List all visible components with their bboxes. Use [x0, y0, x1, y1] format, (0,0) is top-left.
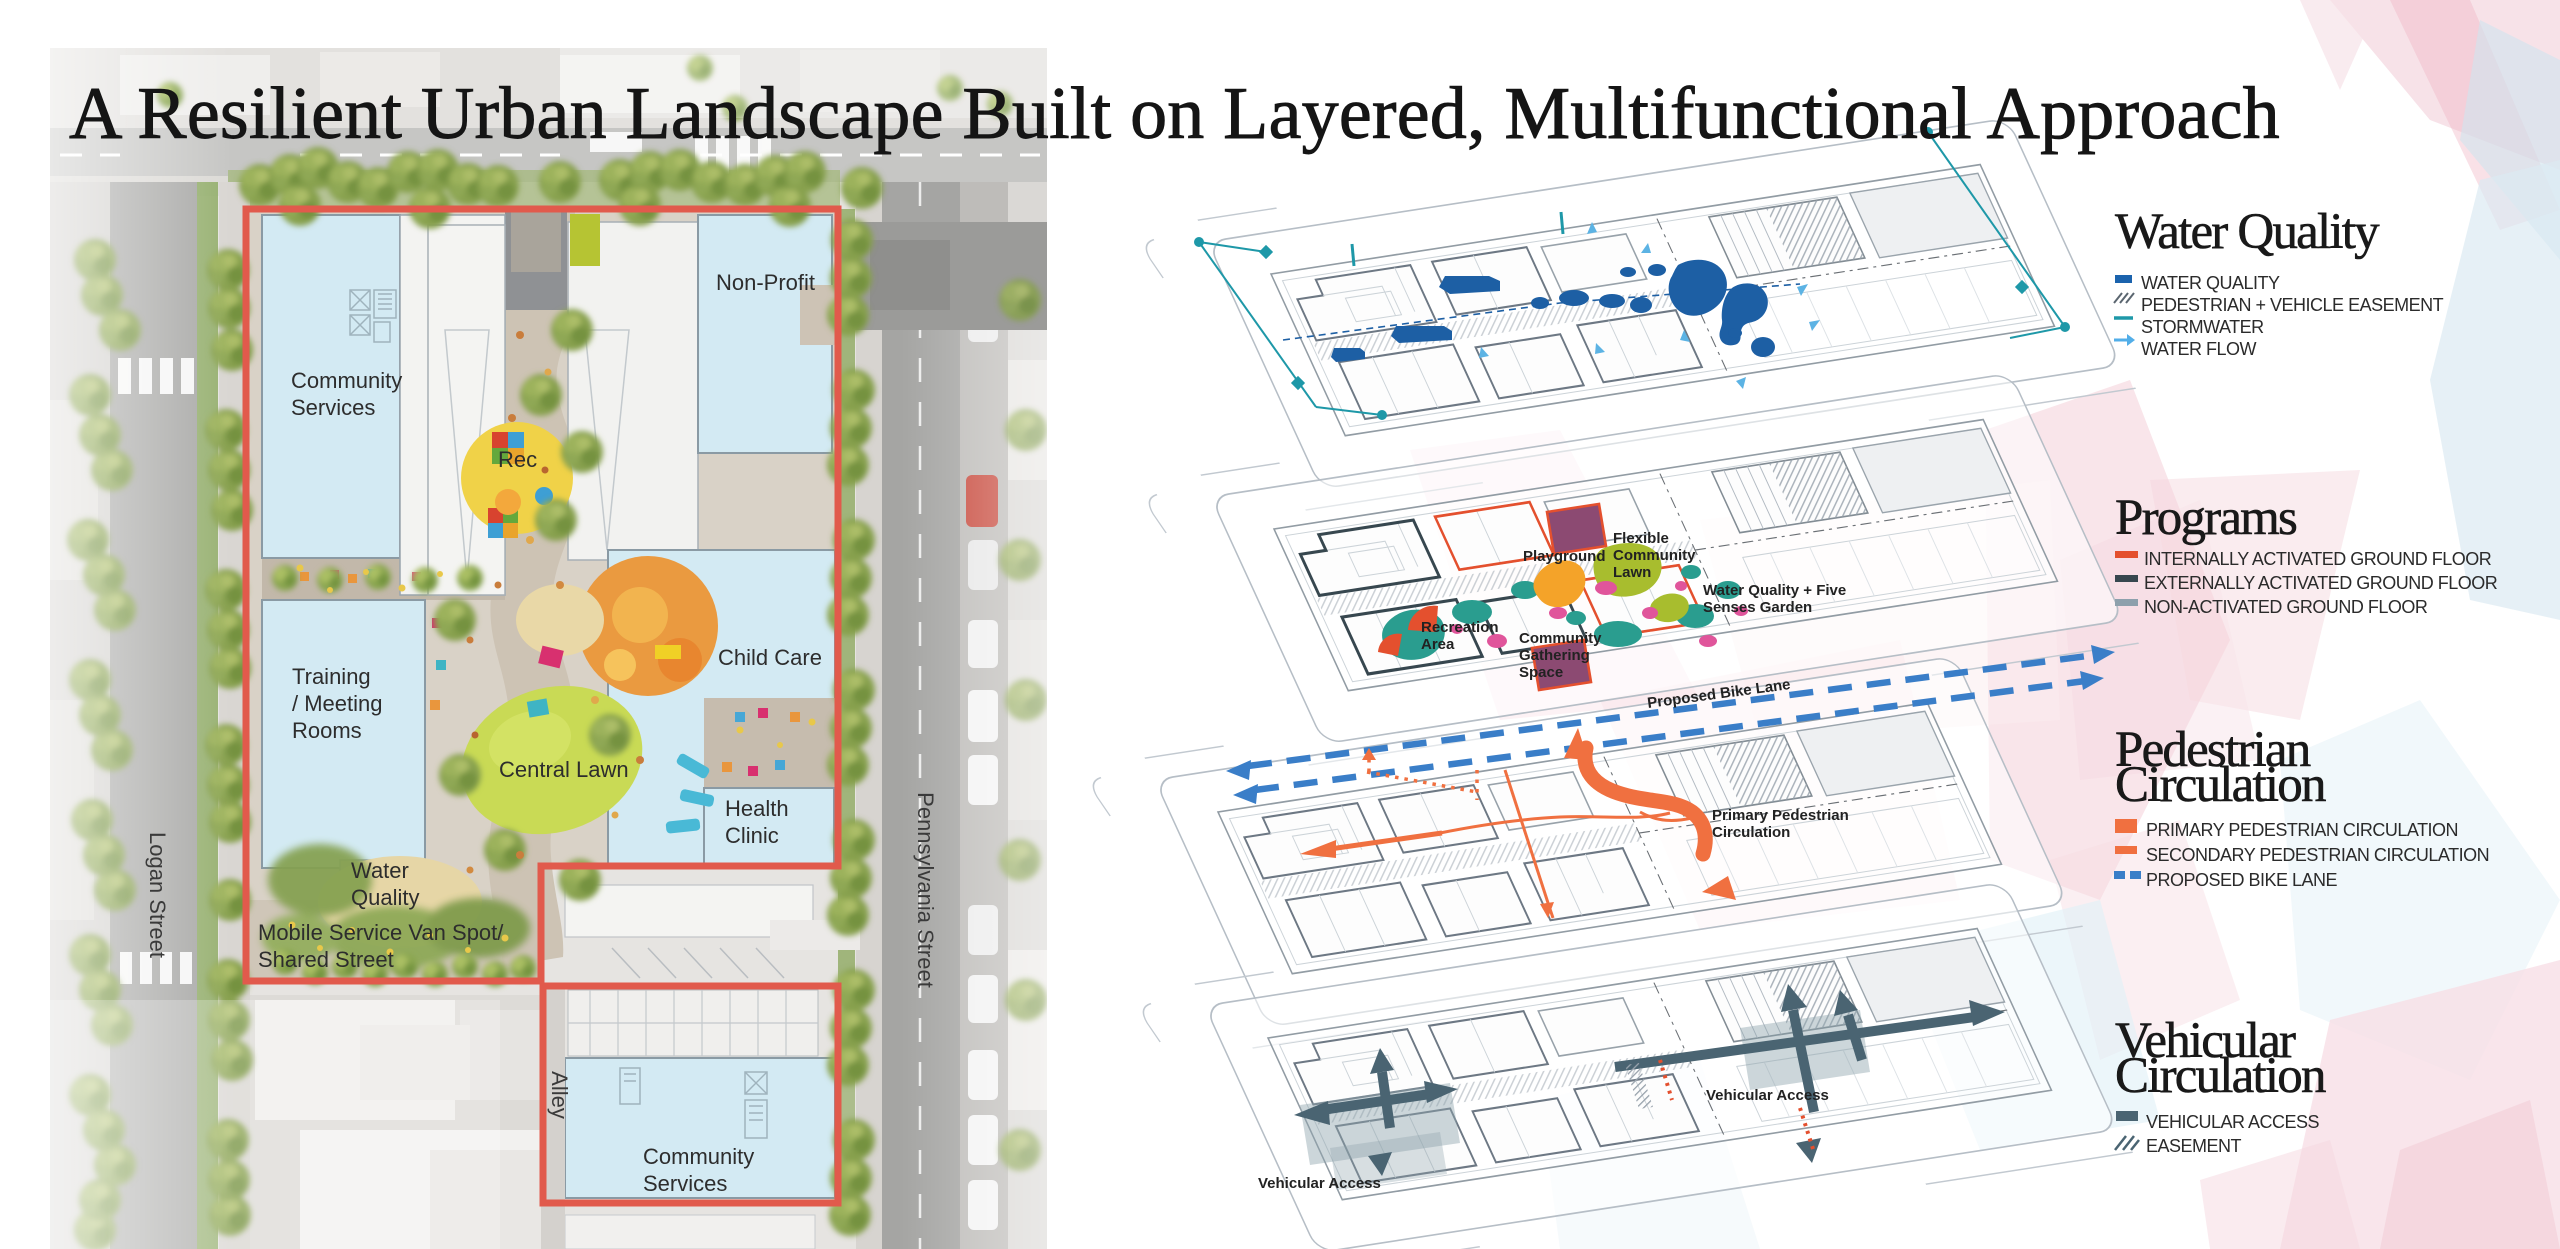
- svg-text:Rec: Rec: [498, 447, 537, 472]
- svg-text:Water Quality + Five: Water Quality + Five: [1703, 582, 1846, 599]
- svg-text:Rooms: Rooms: [292, 718, 362, 743]
- svg-text:Services: Services: [291, 395, 375, 420]
- svg-text:A Resilient Urban Landscape Bu: A Resilient Urban Landscape Built on Lay…: [69, 73, 2280, 155]
- svg-text:EXTERNALLY ACTIVATED GROUND FL: EXTERNALLY ACTIVATED GROUND FLOOR: [2144, 573, 2498, 593]
- svg-text:Health: Health: [725, 796, 789, 821]
- svg-text:Non-Profit: Non-Profit: [716, 270, 815, 295]
- svg-text:WATER FLOW: WATER FLOW: [2141, 339, 2256, 359]
- svg-text:STORMWATER: STORMWATER: [2141, 317, 2264, 337]
- svg-text:PEDESTRIAN + VEHICLE EASEMENT: PEDESTRIAN + VEHICLE EASEMENT: [2141, 295, 2444, 315]
- svg-text:Training: Training: [292, 664, 371, 689]
- svg-text:Circulation: Circulation: [2115, 757, 2326, 813]
- svg-text:EASEMENT: EASEMENT: [2146, 1136, 2242, 1156]
- svg-text:Alley: Alley: [547, 1071, 572, 1119]
- svg-text:Senses Garden: Senses Garden: [1703, 599, 1812, 616]
- svg-text:WATER QUALITY: WATER QUALITY: [2141, 273, 2280, 293]
- svg-text:Shared Street: Shared Street: [258, 947, 394, 972]
- svg-text:Circulation: Circulation: [2115, 1048, 2326, 1104]
- svg-text:NON-ACTIVATED GROUND FLOOR: NON-ACTIVATED GROUND FLOOR: [2144, 597, 2428, 617]
- svg-text:PROPOSED BIKE LANE: PROPOSED BIKE LANE: [2146, 870, 2338, 890]
- svg-text:Services: Services: [643, 1171, 727, 1196]
- svg-text:Water Quality: Water Quality: [2115, 204, 2380, 260]
- svg-text:Space: Space: [1519, 664, 1563, 681]
- svg-text:Vehicular Access: Vehicular Access: [1706, 1087, 1829, 1104]
- svg-text:Area: Area: [1421, 636, 1455, 653]
- svg-text:Circulation: Circulation: [1712, 824, 1790, 841]
- svg-text:Central Lawn: Central Lawn: [499, 757, 629, 782]
- svg-text:Community: Community: [291, 368, 402, 393]
- svg-text:Recreation: Recreation: [1421, 619, 1499, 636]
- svg-text:Water: Water: [351, 858, 409, 883]
- svg-text:Mobile Service Van Spot/: Mobile Service Van Spot/: [258, 920, 504, 945]
- svg-text:Logan Street: Logan Street: [145, 832, 170, 958]
- svg-text:Community: Community: [1613, 547, 1696, 564]
- svg-text:Quality: Quality: [351, 885, 419, 910]
- svg-text:INTERNALLY ACTIVATED GROUND FL: INTERNALLY ACTIVATED GROUND FLOOR: [2144, 549, 2492, 569]
- svg-text:PRIMARY PEDESTRIAN CIRCULATION: PRIMARY PEDESTRIAN CIRCULATION: [2146, 820, 2458, 840]
- svg-text:Lawn: Lawn: [1613, 564, 1651, 581]
- svg-text:Vehicular Access: Vehicular Access: [1258, 1175, 1381, 1192]
- svg-text:Clinic: Clinic: [725, 823, 779, 848]
- svg-text:Community: Community: [643, 1144, 754, 1169]
- svg-text:SECONDARY PEDESTRIAN CIRCULATI: SECONDARY PEDESTRIAN CIRCULATION: [2146, 845, 2489, 865]
- svg-text:VEHICULAR ACCESS: VEHICULAR ACCESS: [2146, 1112, 2320, 1132]
- svg-text:Flexible: Flexible: [1613, 530, 1669, 547]
- svg-text:Pennsylvania Street: Pennsylvania Street: [913, 792, 938, 988]
- svg-text:/ Meeting: / Meeting: [292, 691, 383, 716]
- svg-text:Playground: Playground: [1523, 548, 1606, 565]
- svg-text:Child Care: Child Care: [718, 645, 822, 670]
- svg-text:Primary Pedestrian: Primary Pedestrian: [1712, 807, 1849, 824]
- svg-text:Gathering: Gathering: [1519, 647, 1590, 664]
- svg-text:Community: Community: [1519, 630, 1602, 647]
- svg-text:Programs: Programs: [2115, 490, 2296, 546]
